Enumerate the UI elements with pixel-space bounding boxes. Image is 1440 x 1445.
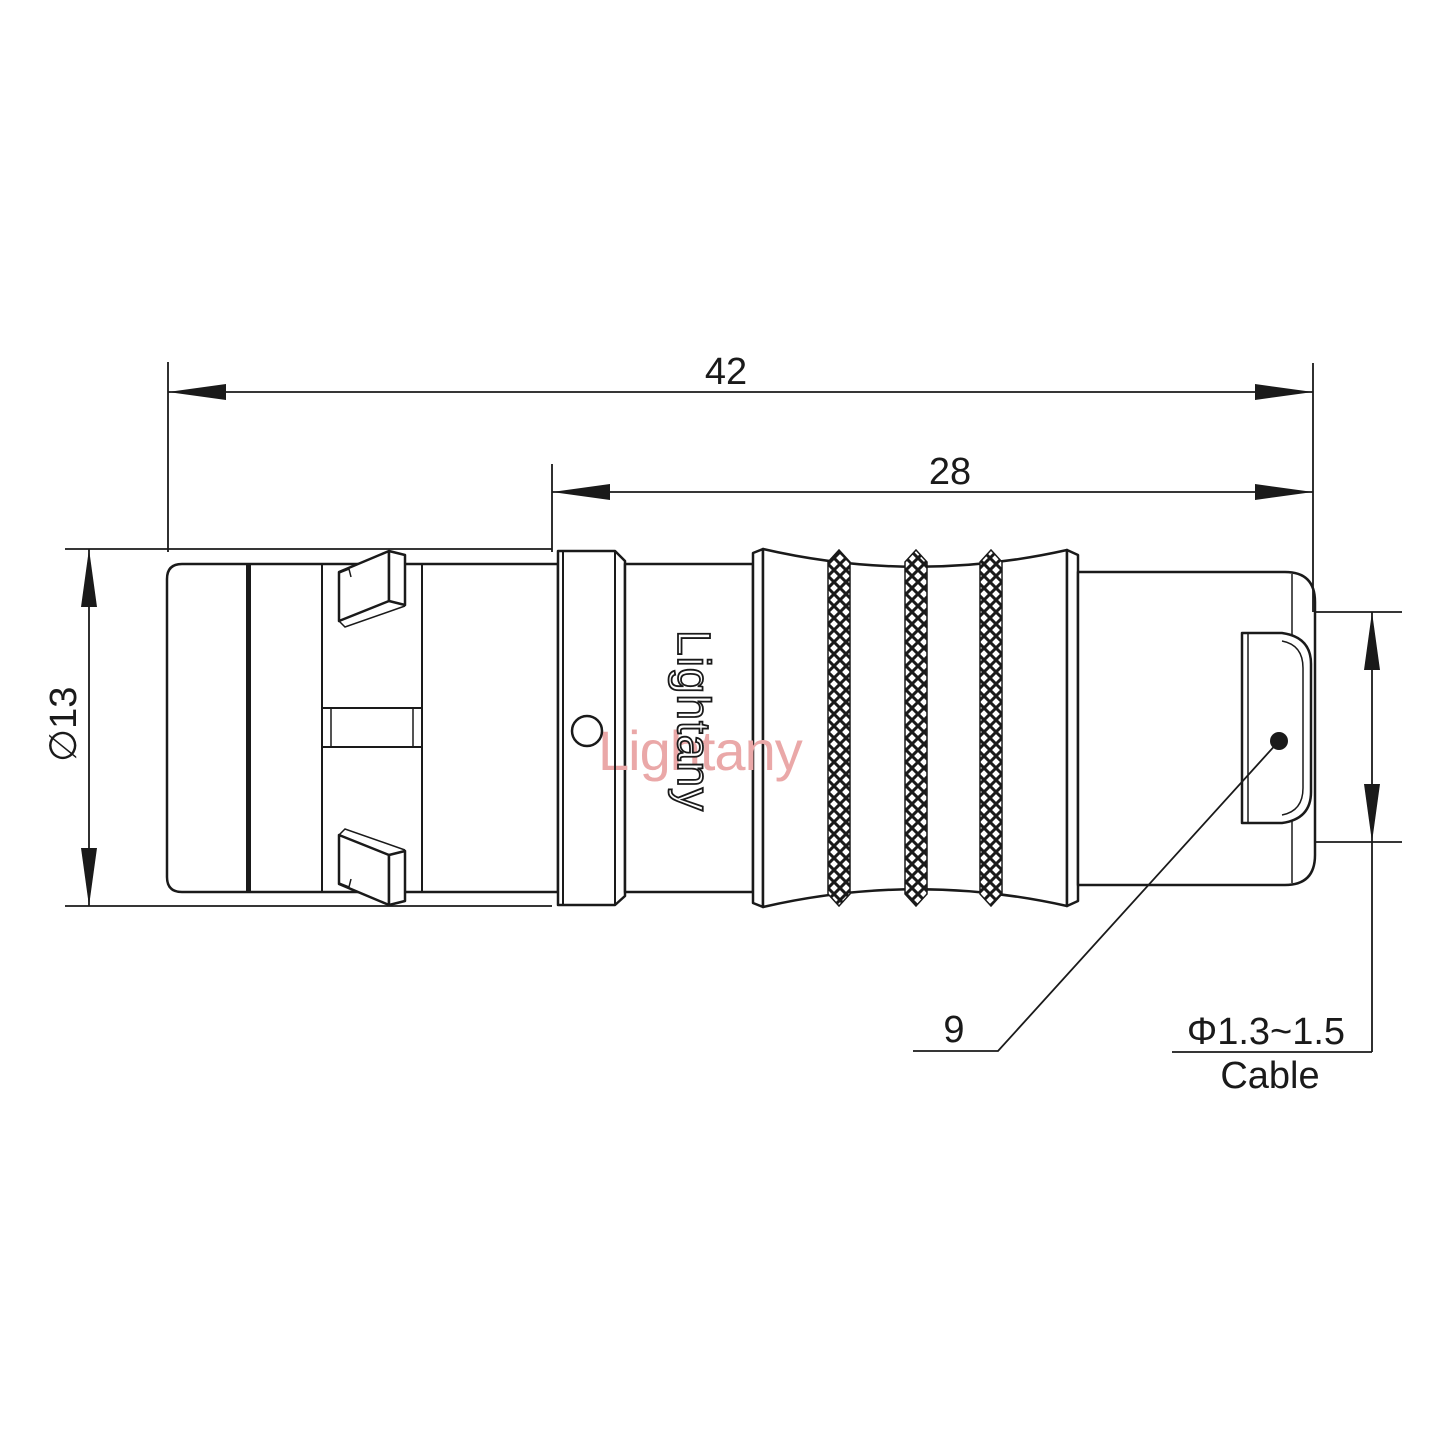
cable-word-text: Cable: [1220, 1055, 1319, 1097]
knurl-band-1: [828, 550, 850, 906]
cable-entry-recess: [1242, 633, 1311, 823]
dim-rear-length: 28: [552, 451, 1313, 552]
nose-ring: [246, 564, 251, 892]
dim-body-diameter: ∅13: [43, 549, 97, 906]
product-marking-text: Lightany: [668, 630, 720, 812]
knurl-band-3: [980, 550, 1002, 906]
dim-text-28: 28: [929, 451, 971, 493]
knurl-flange-right: [1067, 550, 1078, 906]
technical-drawing-page: Lightany Lightany: [0, 0, 1440, 1440]
dim-text-13: ∅13: [43, 687, 85, 762]
collar-hole: [572, 716, 602, 746]
leader-text-9: 9: [943, 1009, 964, 1051]
dim-text-42: 42: [705, 351, 747, 393]
cable-callout: Φ1.3~1.5 Cable: [1172, 1011, 1372, 1097]
nose-sleeve: [167, 564, 558, 892]
dim-rear-face: [1316, 612, 1402, 1052]
cable-diameter-text: Φ1.3~1.5: [1187, 1011, 1345, 1053]
knurl-band-2: [905, 550, 927, 906]
connector-drawing: Lightany Lightany: [0, 0, 1440, 1440]
